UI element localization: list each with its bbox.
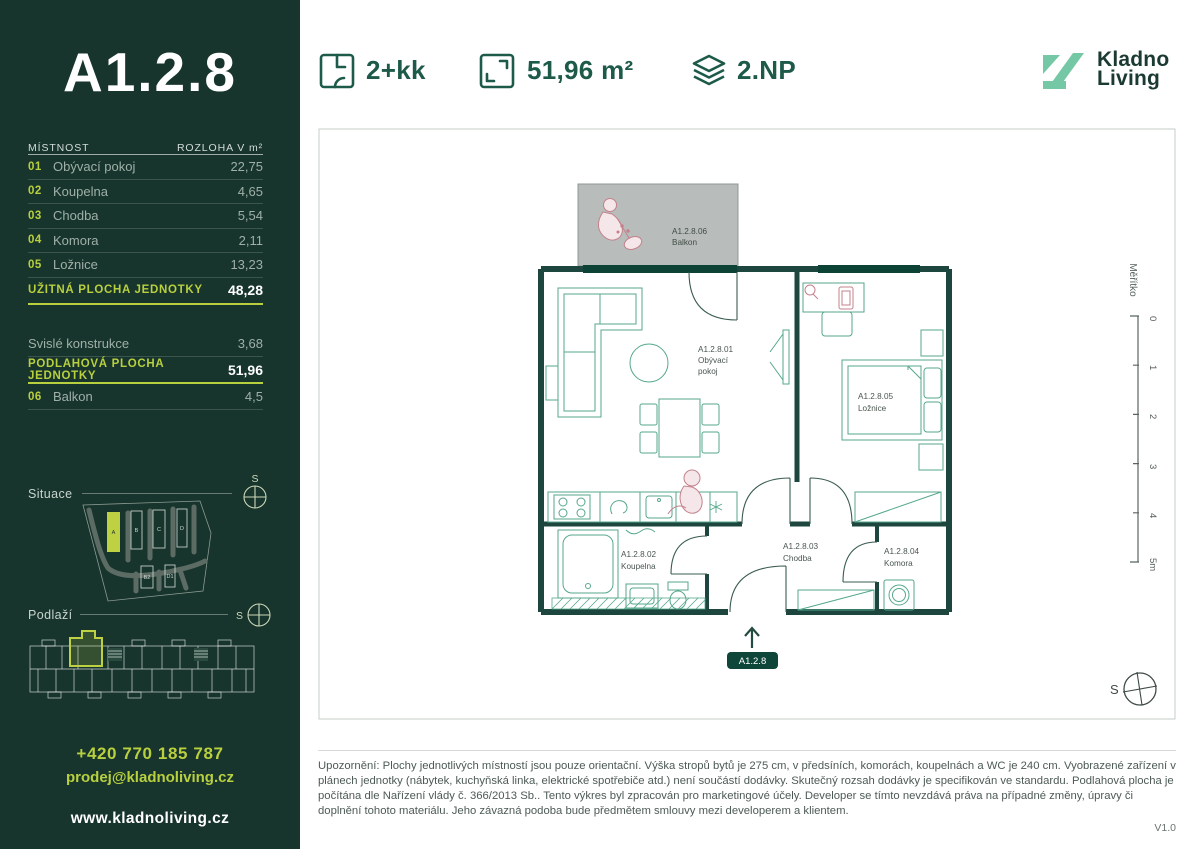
logo-text: Kladno Living: [1097, 50, 1169, 88]
svg-text:S: S: [1110, 682, 1119, 697]
logo-mark: [1043, 53, 1089, 89]
scale-ruler: 0 1 2 3 4 5m Měřítko: [1127, 263, 1158, 571]
contact-block: +420 770 185 787 prodej@kladnoliving.cz …: [0, 744, 300, 828]
entrance-arrow-icon: [745, 628, 759, 648]
svg-text:Chodba: Chodba: [783, 554, 812, 563]
highlighted-unit: [70, 631, 102, 666]
svg-text:B: B: [135, 528, 139, 534]
layers-icon: [690, 51, 728, 89]
table-row: 04 Komora 2,11: [28, 229, 263, 254]
email-link[interactable]: prodej@kladnoliving.cz: [0, 769, 300, 786]
chair-icon: [640, 404, 657, 425]
table-row: 01 Obývací pokoj 22,75: [28, 155, 263, 180]
pillow-icon: [924, 402, 941, 432]
room-labels: A1.2.8.01 Obývací pokoj A1.2.8.05 Ložnic…: [621, 345, 919, 571]
chair-icon: [822, 312, 852, 336]
area-label: 51,96 m²: [527, 55, 633, 86]
svg-text:Ložnice: Ložnice: [858, 404, 887, 413]
table-row: 03 Chodba 5,54: [28, 204, 263, 229]
toilet-icon: [668, 582, 688, 590]
podlazi-divider: [80, 614, 228, 615]
window: [583, 265, 737, 273]
svg-text:C: C: [157, 527, 161, 533]
dining-table-icon: [659, 399, 700, 457]
nightstand-icon: [919, 444, 943, 470]
area-summary-table: Svislé konstrukce 3,68 PODLAHOVÁ PLOCHA …: [28, 331, 263, 410]
site-map: A B C D B2 D1: [58, 498, 218, 606]
plan-border: [319, 129, 1175, 719]
disclaimer-text: Upozornění: Plochy jednotlivých místnost…: [318, 759, 1176, 820]
compass-icon: S: [238, 470, 272, 510]
fridge-symbol: [710, 501, 722, 513]
column-room: MÍSTNOST: [28, 142, 89, 154]
area-icon: [478, 52, 516, 90]
svg-text:Měřítko: Měřítko: [1127, 263, 1138, 297]
floorplan-icon: [318, 52, 356, 90]
pillow-icon: [924, 368, 941, 398]
footer-divider: [318, 750, 1176, 751]
tv-icon: [783, 330, 789, 384]
svg-text:A: A: [112, 530, 116, 536]
svg-text:A1.2.8.03: A1.2.8.03: [783, 542, 818, 551]
chair-icon: [702, 404, 719, 425]
bedroom-sketch: [805, 285, 853, 309]
svg-text:S: S: [236, 610, 243, 622]
situace-divider: [82, 493, 232, 494]
floor-label: 2.NP: [737, 55, 796, 86]
balcony-row: 06 Balkon 4,5: [28, 384, 263, 410]
svg-text:B2: B2: [144, 575, 151, 581]
desk-icon: [803, 283, 864, 312]
hall-storage-fixtures: [798, 580, 914, 610]
side-table-icon: [546, 366, 558, 400]
bathtub-icon: [558, 530, 618, 598]
svg-text:2: 2: [1147, 414, 1158, 419]
table-row: 05 Ložnice 13,23: [28, 253, 263, 278]
podlazi-label: Podlaží: [28, 608, 73, 622]
room-table-header: MÍSTNOST ROZLOHA V m²: [28, 132, 263, 155]
svg-text:Obývací: Obývací: [698, 356, 729, 365]
window: [818, 265, 920, 273]
svg-text:D: D: [180, 526, 184, 532]
svg-text:4: 4: [1147, 513, 1158, 518]
svg-text:A1.2.8.05: A1.2.8.05: [858, 392, 893, 401]
room-table: MÍSTNOST ROZLOHA V m² 01 Obývací pokoj 2…: [28, 132, 263, 305]
version-label: V1.0: [1076, 822, 1176, 834]
svg-text:3: 3: [1147, 464, 1158, 469]
entrance: A1.2.8: [727, 628, 778, 669]
svg-text:Balkon: Balkon: [672, 238, 697, 247]
disposition-label: 2+kk: [366, 55, 426, 86]
svg-text:Komora: Komora: [884, 559, 913, 568]
compass-icon: S: [1110, 672, 1157, 705]
svg-text:0: 0: [1147, 316, 1158, 321]
floor-strip: [22, 626, 262, 714]
bedroom-furniture: [803, 283, 943, 522]
floor-plan: A1.2.8.06 Balkon: [318, 128, 1176, 720]
svg-text:A1.2.8.02: A1.2.8.02: [621, 550, 656, 559]
floorplan-sheet: A1.2.8 MÍSTNOST ROZLOHA V m² 01 Obývací …: [0, 0, 1200, 849]
kitchen-counter: [548, 492, 737, 522]
svg-text:A1.2.8.04: A1.2.8.04: [884, 547, 919, 556]
phone-link[interactable]: +420 770 185 787: [0, 744, 300, 764]
column-area: ROZLOHA V m²: [177, 142, 263, 154]
chair-icon: [640, 432, 657, 453]
table-row: 02 Koupelna 4,65: [28, 180, 263, 205]
nightstand-icon: [921, 330, 943, 356]
unit-title: A1.2.8: [0, 40, 300, 104]
svg-text:A1.2.8: A1.2.8: [739, 656, 766, 667]
svg-text:A1.2.8.06: A1.2.8.06: [672, 227, 707, 236]
website-link[interactable]: www.kladnoliving.cz: [0, 810, 300, 828]
usable-area-row: UŽITNÁ PLOCHA JEDNOTKY 48,28: [28, 278, 263, 305]
sink-icon: [646, 496, 672, 518]
svg-text:Koupelna: Koupelna: [621, 562, 656, 571]
sidebar: A1.2.8 MÍSTNOST ROZLOHA V m² 01 Obývací …: [0, 0, 300, 849]
living-furniture: [546, 288, 789, 457]
svg-text:5m: 5m: [1147, 558, 1158, 571]
floor-area-row: PODLAHOVÁ PLOCHA JEDNOTKY 51,96: [28, 357, 263, 384]
svg-text:D1: D1: [166, 574, 173, 580]
balcony: A1.2.8.06 Balkon: [578, 184, 738, 266]
vertical-constructions-row: Svislé konstrukce 3,68: [28, 331, 263, 357]
svg-text:A1.2.8.01: A1.2.8.01: [698, 345, 733, 354]
svg-text:S: S: [251, 473, 258, 485]
svg-text:pokoj: pokoj: [698, 367, 718, 376]
staircase-icon: [108, 648, 208, 661]
chair-icon: [702, 432, 719, 453]
svg-text:1: 1: [1147, 365, 1158, 370]
round-table-icon: [630, 344, 668, 382]
